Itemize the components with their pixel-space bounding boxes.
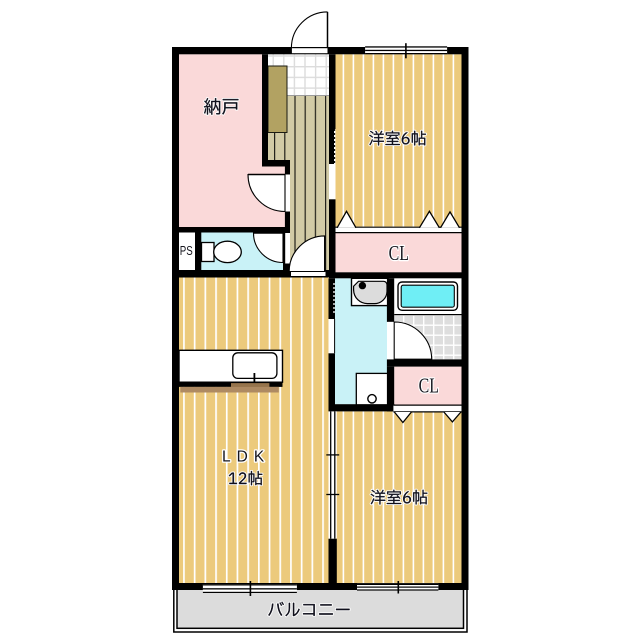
svg-text:CL: CL — [389, 242, 409, 266]
svg-text:CL: CL — [419, 374, 439, 398]
svg-text:PS: PS — [180, 245, 193, 258]
svg-text:LDK: LDK — [222, 449, 270, 466]
